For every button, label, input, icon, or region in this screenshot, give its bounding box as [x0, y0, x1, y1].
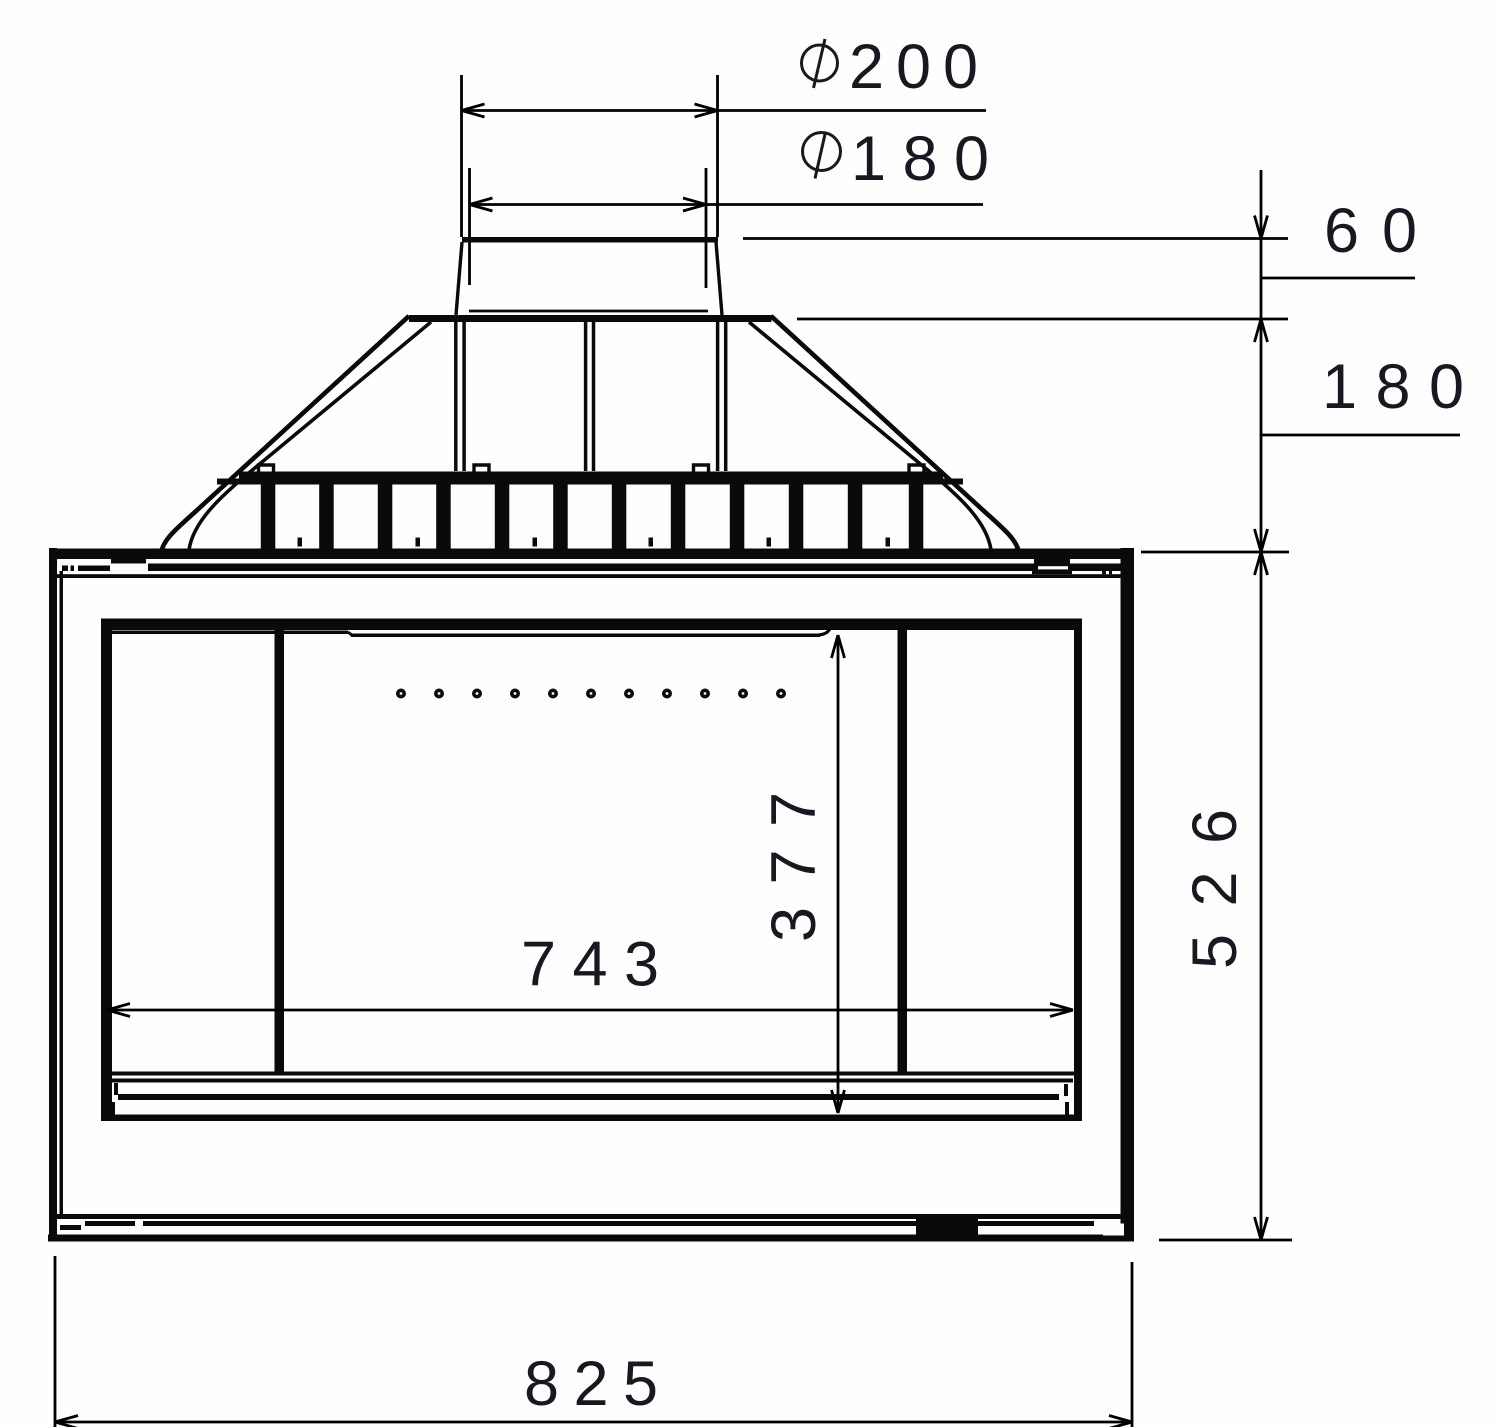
svg-text:180: 180 [1322, 352, 1464, 422]
svg-text:377: 377 [759, 792, 829, 942]
svg-text:200: 200 [849, 32, 978, 102]
svg-text:180: 180 [851, 124, 989, 194]
svg-text:825: 825 [524, 1349, 658, 1419]
svg-text:526: 526 [1180, 809, 1250, 969]
svg-text:743: 743 [521, 930, 659, 1000]
